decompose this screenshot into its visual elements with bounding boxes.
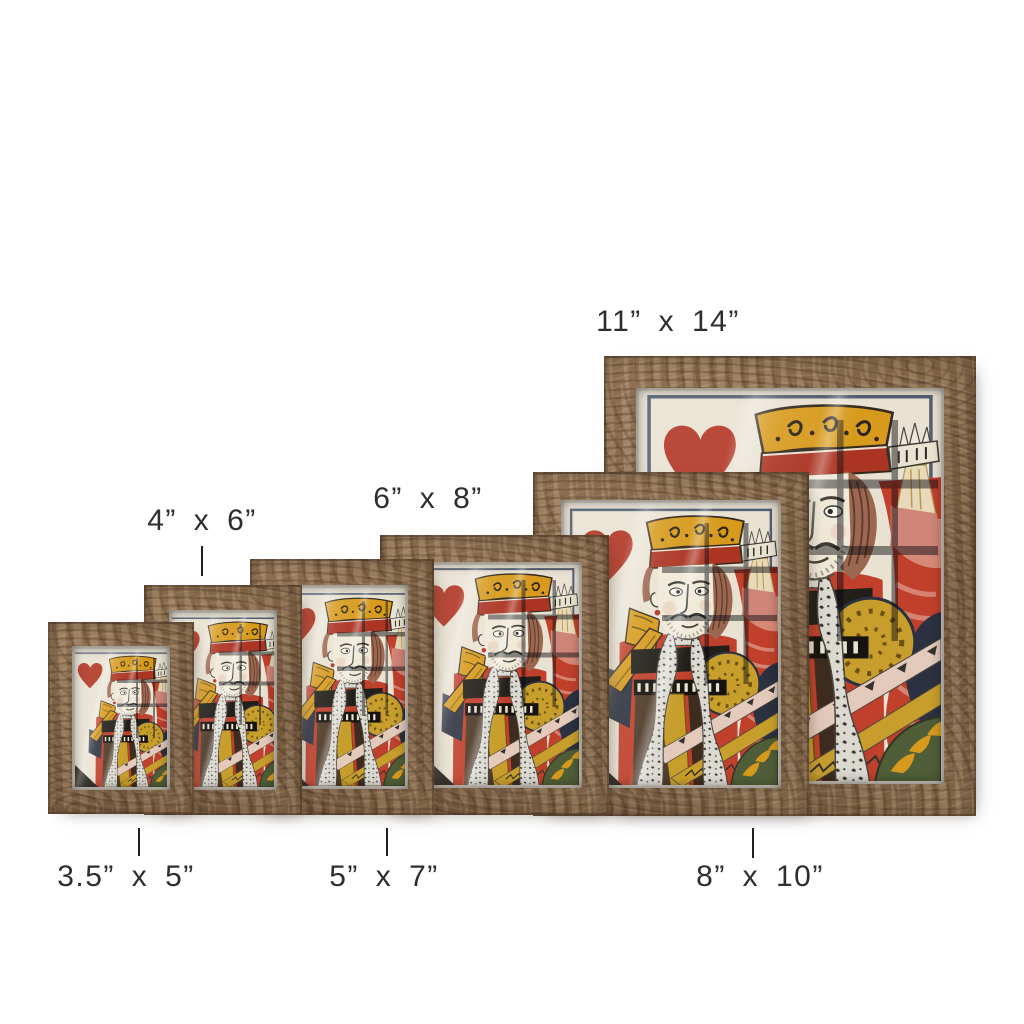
size-label-5x7: 5” x 7” xyxy=(329,860,439,894)
picture-frame-3.5x5 xyxy=(48,622,194,814)
size-label-4x6: 4” x 6” xyxy=(147,504,257,538)
size-label-3.5x5: 3.5” x 5” xyxy=(57,860,195,894)
size-label-11x14: 11” x 14” xyxy=(596,305,740,339)
size-pointer-line-5x7 xyxy=(386,828,388,856)
size-pointer-line-8x10 xyxy=(752,828,754,858)
size-pointer-line-3.5x5 xyxy=(138,828,140,856)
glass-pane xyxy=(72,646,170,790)
size-label-8x10: 8” x 10” xyxy=(696,860,824,894)
product-photo: 3.5” x 5”5” x 7”8” x 10”4” x 6”6” x 8”11… xyxy=(0,0,1024,1024)
size-label-6x8: 6” x 8” xyxy=(373,482,483,516)
king-of-hearts-artwork xyxy=(75,649,167,787)
king-of-hearts-artwork xyxy=(410,565,579,785)
size-pointer-line-4x6 xyxy=(201,546,203,576)
